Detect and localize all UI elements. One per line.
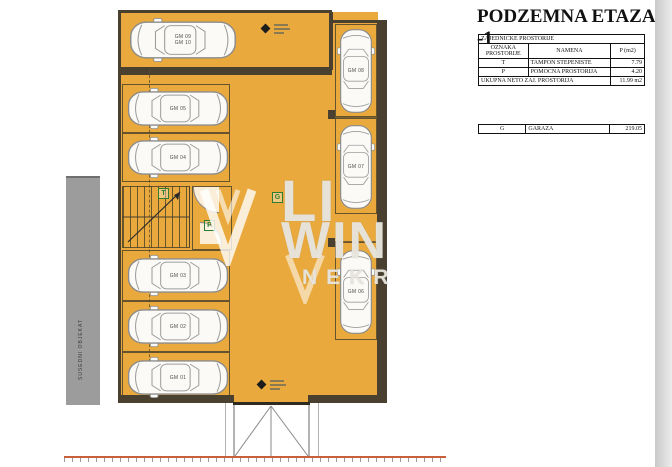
total-label: UKUPNA NETO ZAJ. PROSTORIJA [479,77,611,86]
car: GM 08 [337,27,375,114]
elevation-marker-icon [258,379,288,391]
table-caption: ZAJEDNICKE PROSTORIJE [479,35,645,44]
total-value: 11.99 m2 [611,77,645,86]
parking-spot-label: GM 04 [126,155,230,161]
wall-bottom-right [308,395,378,403]
agency-chevron-icon [198,186,258,266]
car: GM 07 [337,123,375,210]
parking-spot-label: GM 09 GM 10 [128,34,238,46]
car: GM 04 [126,137,230,178]
neighbor-building-label: SUSEDNI OBJEKAT [78,250,84,380]
cell-p: 4.20 [611,68,645,77]
parking-spot-label: GM 08 [337,68,375,74]
wall-stub-1 [328,110,335,119]
floorplan-page: SUSEDNI OBJEKAT GM 09 GM 10 GM 05 GM 04 … [0,0,672,467]
cell-namena: TAMPON STEPENISTE [528,59,611,68]
cell-oznaka: T [479,59,529,68]
parking-spot-label: GM 05 [126,106,230,112]
col-header-p: P (m2) [611,44,645,59]
parking-spot-label: GM 02 [126,324,230,330]
cell-namena: POMOCNA PROSTORIJA [528,68,611,77]
car: GM 01 [126,357,230,398]
parking-spot-label: GM 03 [126,273,230,279]
wall-mid-thick [120,67,332,75]
table-row: P POMOCNA PROSTORIJA 4.20 [479,68,645,77]
cell-oznaka: G [479,125,526,134]
staircase-arrow [122,186,190,248]
shared-rooms-table: ZAJEDNICKE PROSTORIJE OZNAKA PROSTORIJE … [478,34,645,86]
ramp-guide [318,403,319,456]
room-label-stairs: T [158,188,169,199]
table-row: G GARAZA 219.05 [479,125,645,134]
car-tandem: GM 09 GM 10 [128,18,238,62]
watermark-text: NEKR [302,266,398,290]
ramp-guide [225,403,226,456]
elevation-marker-icon [262,23,292,35]
parking-spot-label: GM 07 [337,164,375,170]
garage-ramp [233,405,310,456]
boundary-hatch [64,458,446,462]
cell-p: 7.79 [611,59,645,68]
neighbor-building-block: SUSEDNI OBJEKAT [66,176,100,405]
table-total-row: UKUPNA NETO ZAJ. PROSTORIJA 11.99 m2 [479,77,645,86]
table-row: T TAMPON STEPENISTE 7.79 [479,59,645,68]
wall-top [120,10,332,13]
watermark-text: WIN [281,211,388,271]
garage-table: G GARAZA 219.05 [478,124,645,134]
cell-oznaka: P [479,68,529,77]
col-header-namena: NAMENA [528,44,611,59]
cell-p: 219.05 [610,125,645,134]
cell-namena: GARAZA [526,125,610,134]
car: GM 05 [126,88,230,129]
page-edge-band [655,0,672,467]
parking-spot-label: GM 01 [126,375,230,381]
col-header-oznaka: OZNAKA PROSTORIJE [479,44,529,59]
car: GM 02 [126,306,230,347]
